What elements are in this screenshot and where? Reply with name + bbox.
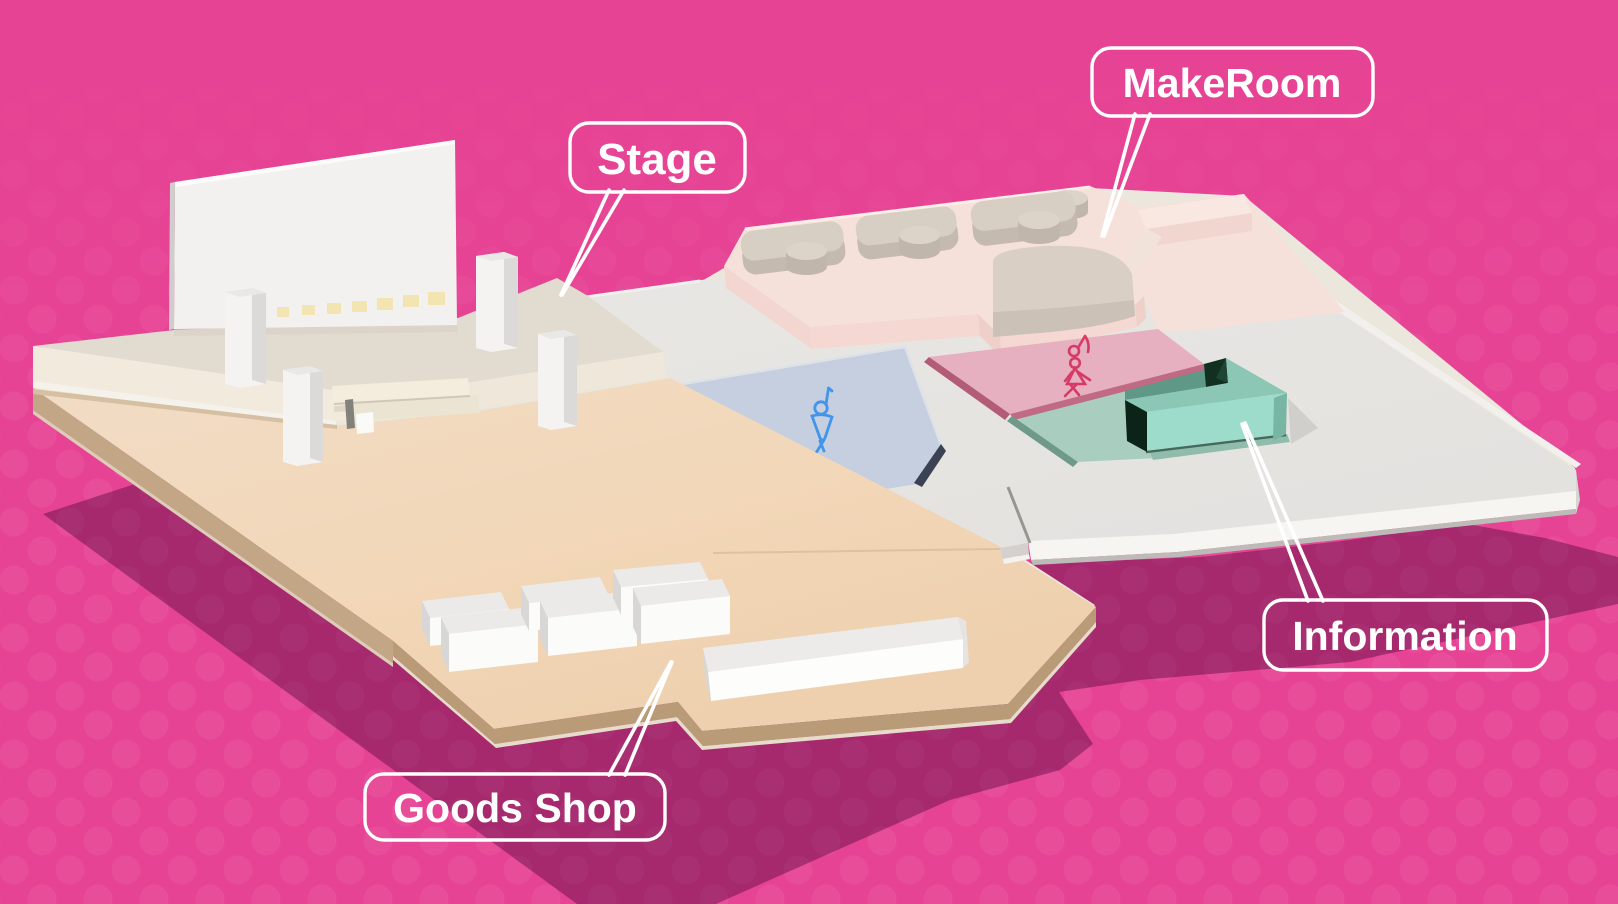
svg-text:Stage: Stage [597,135,717,184]
svg-text:Goods Shop: Goods Shop [393,785,637,831]
svg-text:MakeRoom: MakeRoom [1123,60,1342,106]
svg-text:Information: Information [1292,613,1517,659]
